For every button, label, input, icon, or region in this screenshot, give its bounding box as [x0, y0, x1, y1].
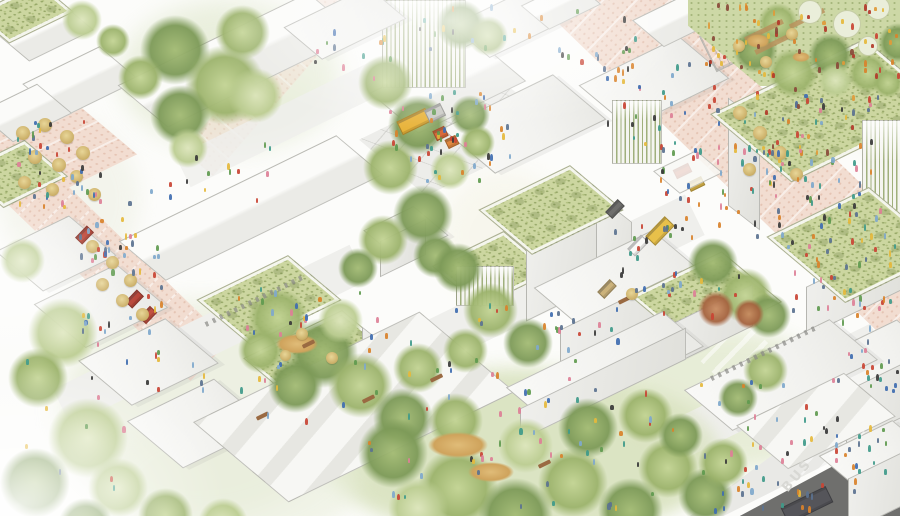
person — [153, 255, 156, 259]
person — [850, 354, 853, 359]
person — [533, 430, 535, 435]
crowd — [536, 300, 626, 360]
person — [896, 370, 899, 374]
person — [389, 56, 392, 62]
person — [489, 105, 491, 111]
person — [692, 155, 695, 161]
person — [111, 269, 115, 276]
person — [502, 133, 505, 140]
person — [45, 406, 48, 411]
person — [748, 145, 751, 152]
person — [274, 290, 277, 297]
person — [720, 170, 722, 176]
person — [477, 470, 480, 475]
person — [518, 407, 521, 414]
person — [71, 174, 74, 180]
person — [471, 38, 474, 43]
person — [63, 205, 66, 209]
person — [79, 234, 82, 240]
person — [614, 229, 617, 235]
person — [879, 377, 882, 382]
person — [496, 309, 498, 313]
person — [649, 416, 652, 423]
person — [419, 27, 421, 31]
person — [725, 206, 728, 210]
person — [128, 201, 132, 206]
person — [698, 202, 700, 207]
person — [423, 18, 426, 23]
person — [806, 491, 809, 498]
person — [888, 359, 890, 364]
person — [882, 8, 884, 12]
person — [82, 313, 85, 318]
person — [432, 109, 436, 115]
person — [755, 465, 758, 470]
person — [83, 120, 85, 124]
person — [452, 137, 454, 143]
person — [775, 27, 778, 34]
person — [851, 125, 854, 130]
person — [782, 383, 785, 388]
person — [368, 348, 371, 353]
person — [454, 137, 457, 143]
person — [852, 95, 855, 101]
crowd — [556, 8, 640, 68]
person — [855, 463, 858, 469]
person — [342, 402, 345, 408]
person — [671, 287, 674, 292]
person — [475, 358, 478, 363]
person — [672, 150, 675, 156]
person — [85, 424, 88, 429]
person — [19, 201, 21, 207]
person — [603, 66, 606, 72]
person — [33, 194, 36, 199]
person — [767, 33, 770, 39]
person — [49, 122, 52, 127]
person — [714, 508, 717, 514]
person — [402, 106, 404, 111]
person — [253, 330, 255, 335]
person — [801, 505, 804, 510]
person — [666, 225, 668, 232]
person — [870, 384, 872, 388]
person — [753, 156, 757, 162]
person — [798, 49, 801, 54]
person — [822, 285, 825, 289]
person — [266, 171, 269, 177]
person — [574, 359, 577, 363]
person — [496, 372, 499, 379]
person — [797, 489, 799, 495]
person — [694, 148, 697, 153]
person — [289, 321, 292, 325]
person — [385, 333, 388, 339]
person — [754, 220, 756, 227]
person — [805, 404, 808, 410]
person — [202, 387, 204, 393]
person — [821, 483, 824, 488]
person — [651, 492, 654, 496]
person — [125, 233, 127, 240]
person — [455, 308, 458, 313]
person — [766, 168, 768, 175]
person — [667, 189, 669, 194]
person — [711, 313, 714, 320]
person — [874, 7, 877, 11]
person — [520, 504, 522, 509]
person — [452, 29, 454, 35]
person — [160, 301, 163, 308]
person — [576, 397, 579, 403]
person — [817, 306, 820, 311]
person — [658, 125, 661, 131]
person — [871, 365, 874, 370]
person — [724, 193, 726, 197]
person — [598, 322, 601, 328]
person — [80, 253, 83, 260]
person — [641, 224, 643, 229]
person — [826, 249, 829, 254]
person — [333, 44, 336, 51]
person — [638, 85, 641, 89]
person — [813, 278, 815, 284]
person — [39, 171, 41, 175]
person — [888, 29, 891, 33]
person — [737, 210, 740, 214]
person — [750, 380, 753, 385]
person — [788, 161, 791, 166]
person — [364, 363, 366, 370]
person — [747, 426, 749, 431]
person — [427, 151, 430, 156]
person — [745, 40, 747, 45]
person — [622, 267, 624, 274]
person — [699, 148, 702, 155]
person — [723, 506, 725, 511]
person — [408, 371, 411, 377]
person — [429, 93, 432, 99]
person — [617, 67, 620, 73]
person — [827, 305, 829, 311]
crowd — [476, 428, 640, 512]
person — [754, 414, 756, 420]
person — [633, 236, 636, 241]
person — [718, 222, 721, 228]
person — [484, 45, 487, 51]
person — [877, 438, 879, 443]
person — [276, 385, 278, 391]
person — [153, 272, 156, 278]
person — [864, 224, 866, 231]
person — [841, 19, 844, 24]
crowd — [826, 415, 896, 500]
person — [540, 15, 543, 21]
person — [747, 400, 750, 404]
person — [544, 401, 547, 408]
person — [305, 314, 308, 321]
people-layer — [0, 0, 900, 516]
person — [389, 110, 392, 114]
person — [863, 306, 866, 310]
person — [408, 458, 410, 463]
person — [39, 143, 42, 149]
person — [712, 36, 715, 41]
person — [807, 15, 810, 19]
person — [854, 478, 857, 485]
person — [852, 194, 855, 199]
person — [778, 159, 781, 163]
person — [35, 150, 38, 155]
person — [795, 294, 798, 300]
person — [450, 368, 452, 373]
person — [892, 389, 895, 393]
person — [722, 491, 724, 496]
person — [752, 188, 754, 194]
person — [862, 363, 865, 369]
person — [687, 183, 690, 189]
person — [519, 428, 523, 435]
person — [157, 357, 160, 362]
person — [269, 146, 271, 151]
person — [333, 29, 336, 36]
person — [866, 370, 869, 375]
person — [874, 247, 877, 252]
person — [790, 440, 793, 445]
person — [59, 469, 61, 475]
person — [772, 73, 775, 78]
person — [750, 488, 754, 495]
person — [606, 76, 609, 81]
person — [558, 47, 561, 53]
person — [121, 217, 124, 222]
person — [567, 347, 570, 353]
person — [797, 177, 799, 182]
person — [634, 36, 637, 42]
person — [797, 104, 800, 109]
person — [671, 73, 674, 78]
person — [853, 203, 856, 209]
person — [622, 69, 624, 76]
person — [395, 144, 398, 151]
person — [643, 286, 646, 292]
person — [867, 339, 869, 345]
person — [26, 359, 29, 365]
person — [720, 61, 723, 66]
person — [878, 306, 881, 311]
person — [628, 48, 631, 53]
person — [835, 442, 838, 448]
person — [868, 445, 871, 452]
person — [39, 128, 41, 133]
person — [110, 476, 113, 482]
person — [567, 54, 570, 60]
person — [718, 121, 720, 126]
person — [594, 418, 597, 423]
person — [775, 194, 777, 198]
person — [87, 228, 90, 234]
person — [664, 95, 666, 100]
person — [687, 197, 690, 203]
person — [157, 387, 160, 392]
person — [622, 79, 625, 84]
person — [747, 482, 750, 488]
person — [442, 25, 445, 32]
person — [472, 459, 475, 464]
person — [800, 14, 803, 20]
person — [803, 439, 806, 446]
person — [859, 181, 861, 188]
crowd — [700, 2, 898, 74]
person — [429, 47, 432, 51]
person — [820, 277, 822, 283]
person — [875, 73, 878, 79]
person — [594, 388, 597, 392]
person — [884, 233, 886, 239]
person — [756, 234, 759, 239]
person — [448, 361, 451, 367]
person — [757, 20, 760, 26]
person — [260, 287, 262, 292]
person — [479, 92, 482, 96]
person — [753, 19, 756, 23]
person — [277, 365, 280, 369]
person — [279, 332, 282, 337]
person — [594, 330, 596, 336]
person — [192, 362, 194, 368]
person — [56, 152, 58, 157]
person — [744, 120, 746, 124]
person — [436, 368, 439, 373]
person — [661, 169, 664, 174]
person — [104, 251, 107, 257]
person — [264, 378, 266, 383]
person — [95, 192, 97, 197]
crowd — [756, 80, 890, 152]
person — [610, 405, 614, 410]
person — [670, 101, 673, 106]
person — [725, 459, 727, 464]
crowd — [698, 378, 840, 510]
person — [644, 142, 647, 146]
person — [383, 35, 386, 42]
person — [478, 178, 481, 183]
person — [808, 506, 811, 513]
person — [787, 245, 790, 249]
person — [595, 52, 598, 57]
person — [452, 6, 454, 12]
person — [742, 384, 745, 388]
person — [503, 35, 506, 41]
person — [791, 240, 794, 245]
person — [113, 485, 115, 491]
person — [882, 428, 885, 432]
person — [811, 493, 813, 500]
person — [855, 165, 858, 172]
person — [456, 111, 459, 115]
person — [68, 147, 70, 152]
person — [146, 380, 149, 385]
person — [864, 68, 867, 73]
person — [246, 325, 249, 331]
person — [46, 192, 49, 198]
person — [867, 375, 870, 381]
person — [684, 111, 686, 115]
person — [99, 172, 102, 178]
person — [739, 4, 741, 11]
person — [148, 329, 151, 335]
person — [73, 190, 75, 195]
person — [792, 308, 795, 313]
person — [875, 33, 878, 39]
person — [81, 165, 84, 171]
person — [718, 145, 720, 150]
person — [207, 171, 210, 176]
person — [736, 50, 738, 55]
person — [716, 108, 720, 113]
crowd — [418, 0, 542, 52]
person — [370, 448, 373, 452]
person — [129, 316, 132, 320]
person — [894, 244, 896, 249]
person — [147, 294, 150, 299]
person — [290, 309, 293, 316]
person — [693, 290, 696, 297]
person — [593, 459, 595, 465]
person — [717, 3, 720, 8]
person — [822, 21, 826, 25]
person — [258, 376, 261, 382]
person — [76, 181, 79, 186]
person — [672, 428, 674, 432]
person — [404, 495, 406, 499]
person — [97, 247, 100, 252]
person — [861, 349, 863, 353]
person — [95, 222, 99, 228]
person — [864, 60, 867, 67]
person — [314, 60, 317, 64]
person — [757, 44, 760, 49]
person — [586, 450, 589, 456]
person — [368, 441, 371, 445]
person — [749, 61, 751, 66]
person — [786, 451, 789, 456]
person — [740, 65, 743, 69]
person — [326, 41, 328, 45]
person — [756, 94, 759, 100]
person — [816, 150, 818, 155]
person — [97, 342, 99, 347]
person — [631, 122, 634, 127]
person — [741, 159, 744, 166]
person — [636, 255, 639, 261]
person — [635, 288, 638, 293]
person — [810, 159, 813, 166]
person — [82, 328, 84, 334]
person — [811, 182, 814, 188]
person — [773, 10, 775, 16]
person — [836, 434, 838, 438]
person — [614, 75, 617, 82]
person — [691, 235, 693, 240]
person — [539, 438, 542, 444]
person — [758, 70, 761, 74]
crowd — [148, 138, 272, 200]
person — [780, 166, 782, 172]
person — [897, 73, 900, 79]
person — [491, 372, 494, 377]
person — [663, 311, 665, 316]
